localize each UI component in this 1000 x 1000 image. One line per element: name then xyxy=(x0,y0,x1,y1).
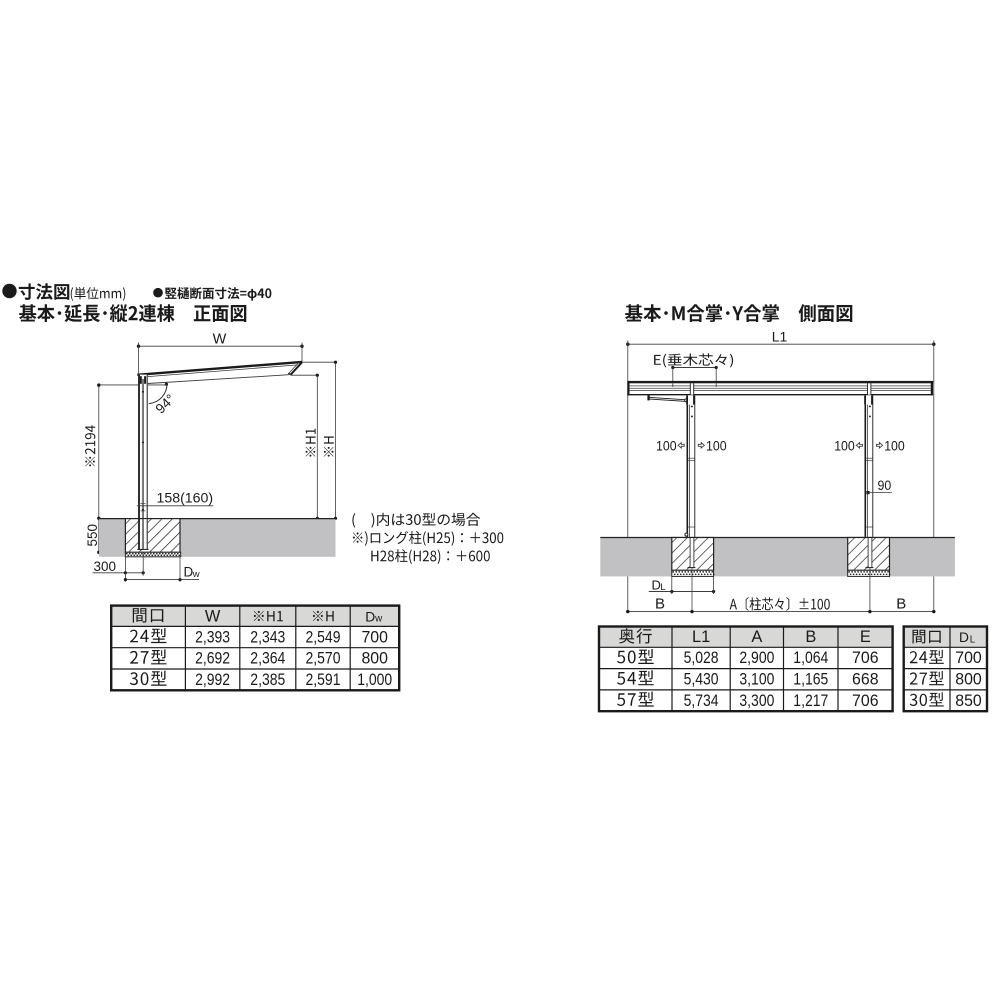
svg-text:100: 100 xyxy=(706,438,727,453)
svg-text:A: A xyxy=(751,628,762,646)
svg-text:800: 800 xyxy=(955,671,982,689)
svg-text:800: 800 xyxy=(361,650,388,668)
svg-text:w: w xyxy=(192,569,200,580)
svg-text:2,343: 2,343 xyxy=(250,628,285,646)
svg-text:100: 100 xyxy=(884,438,905,453)
svg-text:L: L xyxy=(970,635,976,646)
svg-text:B: B xyxy=(655,596,665,613)
svg-text:B: B xyxy=(896,596,906,613)
svg-text:100: 100 xyxy=(834,438,855,453)
svg-text:2,900: 2,900 xyxy=(739,649,774,667)
svg-text:W: W xyxy=(213,331,227,347)
svg-text:94°: 94° xyxy=(153,391,178,416)
svg-text:100: 100 xyxy=(656,438,677,453)
svg-text:550: 550 xyxy=(85,524,100,547)
svg-text:668: 668 xyxy=(852,671,879,689)
svg-text:1,000: 1,000 xyxy=(357,671,392,689)
svg-text:158(160): 158(160) xyxy=(157,490,214,506)
svg-text:2,591: 2,591 xyxy=(306,671,341,689)
svg-text:D: D xyxy=(959,630,969,645)
svg-text:2,692: 2,692 xyxy=(195,650,230,668)
svg-text:700: 700 xyxy=(361,628,388,646)
svg-text:2,393: 2,393 xyxy=(195,628,230,646)
svg-text:5,734: 5,734 xyxy=(684,692,719,710)
svg-text:L1: L1 xyxy=(692,628,710,646)
svg-text:1,165: 1,165 xyxy=(793,671,828,689)
svg-text:E: E xyxy=(860,628,871,646)
svg-text:L: L xyxy=(660,582,665,593)
svg-text:3,100: 3,100 xyxy=(739,671,774,689)
svg-text:D: D xyxy=(365,609,375,624)
svg-text:1,064: 1,064 xyxy=(793,649,828,667)
svg-text:W: W xyxy=(205,607,221,625)
svg-text:90: 90 xyxy=(878,478,892,493)
svg-text:3,300: 3,300 xyxy=(739,692,774,710)
svg-text:2,570: 2,570 xyxy=(306,650,341,668)
svg-text:B: B xyxy=(805,628,816,646)
svg-text:706: 706 xyxy=(852,649,879,667)
svg-text:2,385: 2,385 xyxy=(250,671,285,689)
svg-text:5,028: 5,028 xyxy=(684,649,719,667)
svg-text:706: 706 xyxy=(852,692,879,710)
svg-text:2,992: 2,992 xyxy=(195,671,230,689)
svg-text:1,217: 1,217 xyxy=(793,692,828,710)
svg-text:5,430: 5,430 xyxy=(684,671,719,689)
svg-text:700: 700 xyxy=(955,649,982,667)
svg-text:2,364: 2,364 xyxy=(250,650,285,668)
svg-text:850: 850 xyxy=(955,692,982,710)
svg-text:2,549: 2,549 xyxy=(306,628,341,646)
svg-text:L1: L1 xyxy=(772,328,788,344)
svg-text:w: w xyxy=(374,614,383,625)
